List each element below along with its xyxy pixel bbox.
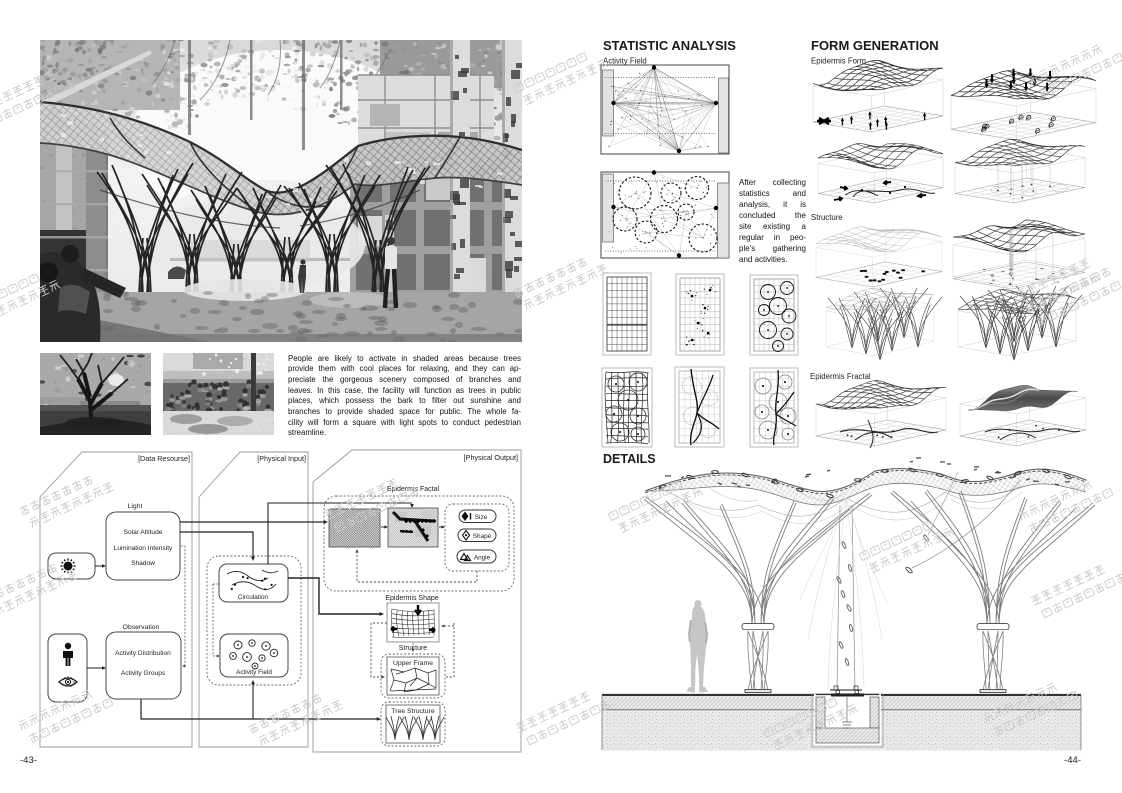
svg-text:Circulation: Circulation [238, 594, 269, 601]
svg-text:[Physical Output]: [Physical Output] [464, 453, 518, 462]
svg-text:Epidermis Form: Epidermis Form [811, 57, 866, 66]
svg-text:Epidermis Shape: Epidermis Shape [385, 595, 438, 602]
svg-text:Angle: Angle [474, 555, 491, 562]
svg-text:DETAILS: DETAILS [603, 452, 656, 466]
svg-text:Activity Groups: Activity Groups [121, 670, 166, 677]
svg-text:Observation: Observation [123, 624, 160, 631]
svg-text:Light: Light [128, 503, 143, 510]
svg-text:-44-: -44- [1064, 755, 1081, 766]
svg-text:[Data Resourse]: [Data Resourse] [138, 454, 190, 463]
svg-text:Structure: Structure [811, 213, 843, 222]
svg-text:Activity Field: Activity Field [603, 57, 647, 66]
svg-text:Epidermis Fractal: Epidermis Fractal [810, 372, 871, 381]
svg-text:-43-: -43- [20, 755, 37, 766]
svg-text:Activity Distribution: Activity Distribution [115, 650, 171, 657]
svg-text:STATISTIC ANALYSIS: STATISTIC ANALYSIS [603, 38, 736, 53]
svg-text:Lumination Intensity: Lumination Intensity [114, 545, 173, 552]
svg-text:Solar Altitude: Solar Altitude [124, 529, 163, 536]
svg-text:Tree Structure: Tree Structure [391, 708, 434, 715]
svg-text:Structure: Structure [399, 645, 428, 652]
svg-text:[Physical Input]: [Physical Input] [257, 454, 306, 463]
svg-text:Shadow: Shadow [131, 560, 155, 567]
svg-text:Shape: Shape [473, 533, 492, 540]
svg-text:Activity Field: Activity Field [236, 669, 272, 676]
svg-text:FORM GENERATION: FORM GENERATION [811, 38, 939, 53]
svg-text:Size: Size [475, 514, 488, 521]
svg-text:Upper Frame: Upper Frame [393, 660, 433, 667]
